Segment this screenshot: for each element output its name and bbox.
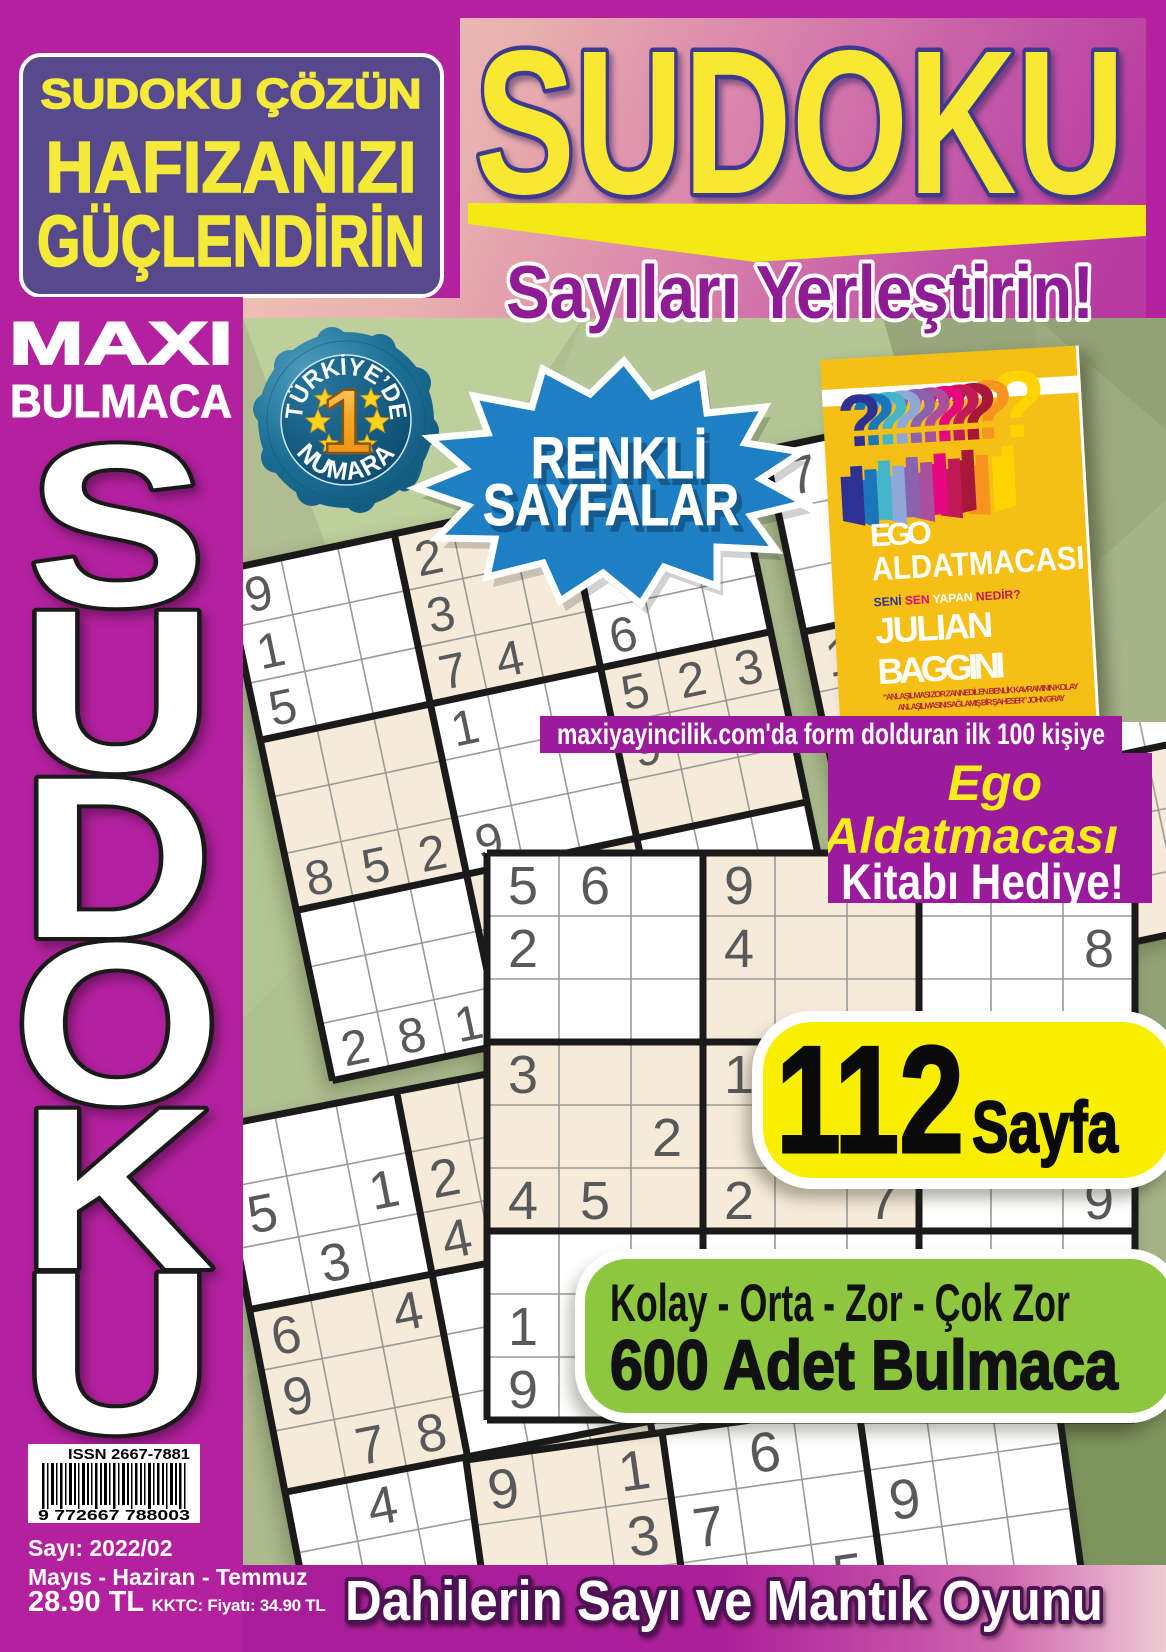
svg-text:5: 5 <box>580 1171 610 1231</box>
svg-text:4: 4 <box>724 919 754 979</box>
svg-text:SUDOKU ÇÖZÜN: SUDOKU ÇÖZÜN <box>41 70 422 117</box>
svg-text:Kitabı Hediye!: Kitabı Hediye! <box>841 854 1124 903</box>
svg-text:1: 1 <box>724 1045 754 1105</box>
svg-text:2: 2 <box>508 919 538 979</box>
svg-text:HAFIZANIZI: HAFIZANIZI <box>46 128 417 208</box>
svg-text:BAGGINI: BAGGINI <box>876 644 1006 692</box>
svg-text:1: 1 <box>321 371 372 473</box>
svg-text:Sayıları Yerleştirin!: Sayıları Yerleştirin! <box>506 250 1094 334</box>
svg-text:ISSN 2667-7881: ISSN 2667-7881 <box>68 1446 190 1463</box>
svg-text:600 Adet Bulmaca: 600 Adet Bulmaca <box>610 1326 1119 1404</box>
svg-text:3: 3 <box>508 1045 538 1105</box>
svg-text:MAXI: MAXI <box>9 310 233 377</box>
svg-text:Ego: Ego <box>948 755 1042 811</box>
svg-text:112: 112 <box>776 1015 964 1185</box>
svg-text:Sayfa: Sayfa <box>972 1088 1119 1168</box>
svg-text:1: 1 <box>508 1297 538 1357</box>
svg-text:4: 4 <box>508 1171 538 1231</box>
svg-text:JULIAN: JULIAN <box>874 604 994 652</box>
svg-text:maxiyayincilik.com'da form dol: maxiyayincilik.com'da form dolduran ilk … <box>557 718 1105 751</box>
svg-text:2: 2 <box>652 1108 682 1168</box>
svg-text:8: 8 <box>1084 919 1114 979</box>
svg-text:?: ? <box>835 378 885 463</box>
svg-text:9: 9 <box>724 856 754 916</box>
svg-text:6: 6 <box>580 856 610 916</box>
svg-text:2: 2 <box>724 1171 754 1231</box>
svg-text:9: 9 <box>508 1360 538 1420</box>
svg-text:U: U <box>21 1224 214 1481</box>
svg-text:SAYFALAR: SAYFALAR <box>483 473 739 538</box>
svg-text:5: 5 <box>508 856 538 916</box>
svg-text:GÜÇLENDİRİN: GÜÇLENDİRİN <box>37 202 425 282</box>
svg-text:Dahilerin Sayı ve Mantık Oyunu: Dahilerin Sayı ve Mantık Oyunu <box>345 1569 1103 1633</box>
svg-text:9 772667 788003: 9 772667 788003 <box>38 1507 190 1523</box>
svg-text:Kolay - Orta - Zor - Çok Zor: Kolay - Orta - Zor - Çok Zor <box>610 1274 1070 1333</box>
